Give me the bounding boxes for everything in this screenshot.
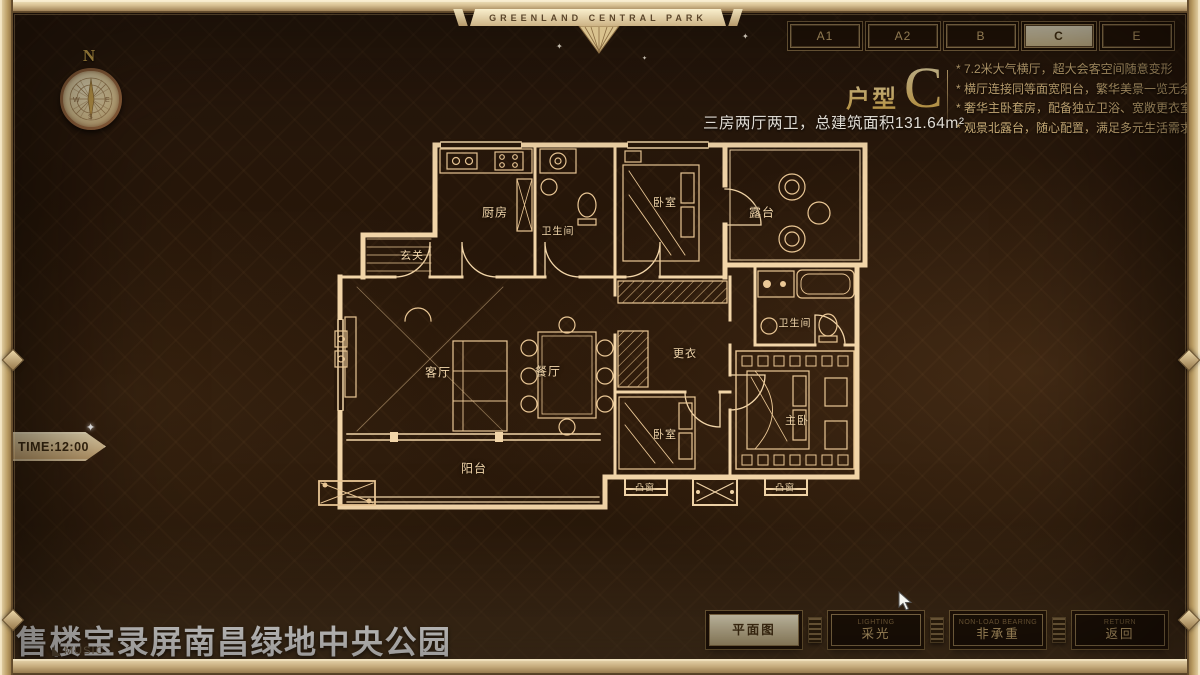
brand-banner: GREENLAND CENTRAL PARK	[470, 9, 726, 26]
tab-a1[interactable]: A1	[790, 24, 860, 48]
compass-dial-icon: W E S	[60, 68, 122, 130]
footer-button-label: 返回	[1105, 627, 1134, 641]
sparkle-icon: ✦	[742, 32, 749, 41]
unit-type-letter: C	[904, 62, 943, 114]
time-badge-text: TIME:12:00	[18, 440, 89, 454]
banner-diamond-icon	[578, 26, 620, 59]
compass-east-label: E	[105, 97, 110, 104]
floor-plan-drawing	[295, 135, 875, 525]
unit-type-tabs: A1A2BCE	[790, 24, 1172, 48]
feature-line-2: * 奢华主卧套房，配备独立卫浴、宽敞更衣室	[956, 99, 1192, 119]
room-label-0: 玄关	[400, 247, 424, 263]
music-toggle[interactable]: MUSIC	[52, 645, 104, 657]
button-divider-ornament	[930, 617, 944, 643]
room-label-9: 主卧	[785, 412, 809, 428]
tab-e[interactable]: E	[1102, 24, 1172, 48]
room-label-13: 凸窗	[775, 481, 795, 494]
footer-buttons: 平面图LIGHTING采光NON-LOAD BEARING非承重RETURN返回	[706, 614, 1168, 646]
feature-line-0: * 7.2米大气横厅，超大会客空间随意变形	[956, 60, 1192, 80]
feature-line-3: * 观景北露台，随心配置，满足多元生活需求	[956, 119, 1192, 139]
room-label-1: 厨房	[482, 204, 508, 221]
room-label-3: 卧室	[653, 194, 677, 210]
tab-b[interactable]: B	[946, 24, 1016, 48]
unit-feature-list: * 7.2米大气横厅，超大会客空间随意变形* 横厅连接同等面宽阳台，繁华美景一览…	[956, 60, 1192, 138]
compass-west-label: W	[73, 97, 80, 104]
sales-presentation-screen: GREENLAND CENTRAL PARK ✦ ✦ ✦ A1A2BCE N	[0, 0, 1200, 675]
room-label-12: 凸窗	[635, 481, 655, 494]
music-icon	[52, 647, 61, 656]
music-label: MUSIC	[64, 645, 104, 657]
unit-specs: 三房两厅两卫，总建筑面积131.64m²	[703, 111, 964, 133]
sparkle-icon: ✦	[642, 55, 647, 62]
tab-c[interactable]: C	[1024, 24, 1094, 48]
footer-button-sublabel: LIGHTING	[857, 619, 894, 627]
footer-button-label: 采光	[861, 627, 890, 641]
room-label-10: 卧室	[653, 426, 677, 442]
sparkle-icon: ✦	[556, 42, 563, 51]
compass-south-label: S	[88, 114, 93, 121]
frame-left	[0, 0, 13, 675]
mouse-cursor	[898, 591, 914, 616]
footer-button-2[interactable]: NON-LOAD BEARING非承重	[953, 614, 1043, 646]
compass: N W E S	[60, 46, 118, 130]
footer-button-sublabel: RETURN	[1104, 619, 1136, 627]
footer-button-0[interactable]: 平面图	[709, 614, 799, 646]
room-label-2: 卫生间	[542, 223, 575, 238]
room-label-8: 卫生间	[779, 315, 812, 330]
floor-plan: 玄关厨房卫生间卧室露台客厅餐厅更衣卫生间主卧卧室阳台凸窗凸窗	[295, 135, 875, 525]
unit-type-title: 户型 C	[846, 62, 943, 114]
sparkle-icon: ✦	[86, 421, 95, 434]
footer-button-label: 平面图	[732, 623, 776, 637]
furniture	[319, 149, 854, 505]
feature-line-1: * 横厅连接同等面宽阳台，繁华美景一览无余	[956, 80, 1192, 100]
room-label-7: 更衣	[673, 345, 697, 361]
unit-type-label: 户型	[846, 79, 898, 114]
button-divider-ornament	[808, 617, 822, 643]
frame-bottom	[0, 659, 1200, 675]
footer-button-3[interactable]: RETURN返回	[1075, 614, 1165, 646]
brand-banner-text: GREENLAND CENTRAL PARK	[489, 13, 707, 23]
room-label-11: 阳台	[461, 460, 487, 477]
frame-right	[1187, 0, 1200, 675]
footer-button-sublabel: NON-LOAD BEARING	[959, 619, 1037, 627]
compass-north-label: N	[60, 46, 118, 66]
room-label-4: 露台	[749, 204, 775, 221]
room-label-6: 餐厅	[535, 363, 561, 380]
tab-a2[interactable]: A2	[868, 24, 938, 48]
footer-button-1[interactable]: LIGHTING采光	[831, 614, 921, 646]
time-badge[interactable]: TIME:12:00	[8, 432, 106, 461]
room-label-5: 客厅	[425, 364, 451, 381]
button-divider-ornament	[1052, 617, 1066, 643]
footer-button-label: 非承重	[976, 627, 1020, 641]
